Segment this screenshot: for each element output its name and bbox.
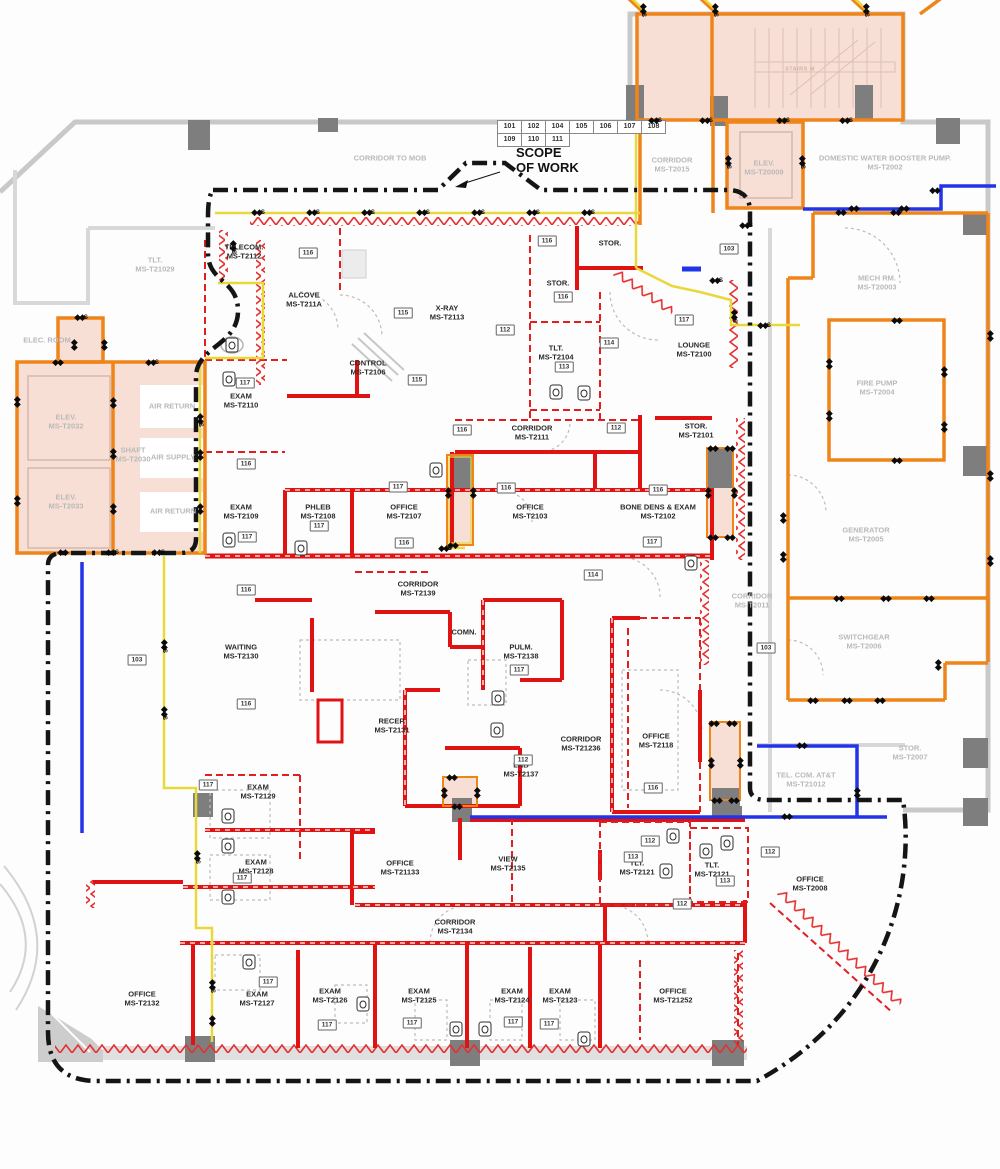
demolition-walls bbox=[93, 226, 745, 1048]
plan-linework bbox=[0, 0, 1000, 1169]
keynote-cell: 107 bbox=[617, 120, 642, 134]
keynote-cell: 102 bbox=[521, 120, 546, 134]
floor-plan-drawing: 101102104105106107108 109110111 SCOPE OF… bbox=[0, 0, 1000, 1169]
scope-label-leader bbox=[455, 172, 500, 188]
keynote-cell: 106 bbox=[593, 120, 618, 134]
stair-arc-decor bbox=[0, 866, 37, 1010]
keynote-cell: 101 bbox=[497, 120, 522, 134]
demolition-zigzag bbox=[55, 217, 904, 1053]
keynote-cell: 108 bbox=[641, 120, 666, 134]
structural-columns bbox=[185, 85, 988, 1066]
scope-of-work-label: SCOPE OF WORK bbox=[516, 146, 579, 176]
demolition-dashed bbox=[205, 228, 893, 1045]
keynote-cell: 105 bbox=[569, 120, 594, 134]
keynote-table: 101102104105106107108 109110111 bbox=[497, 120, 665, 146]
keynote-cell: 104 bbox=[545, 120, 570, 134]
